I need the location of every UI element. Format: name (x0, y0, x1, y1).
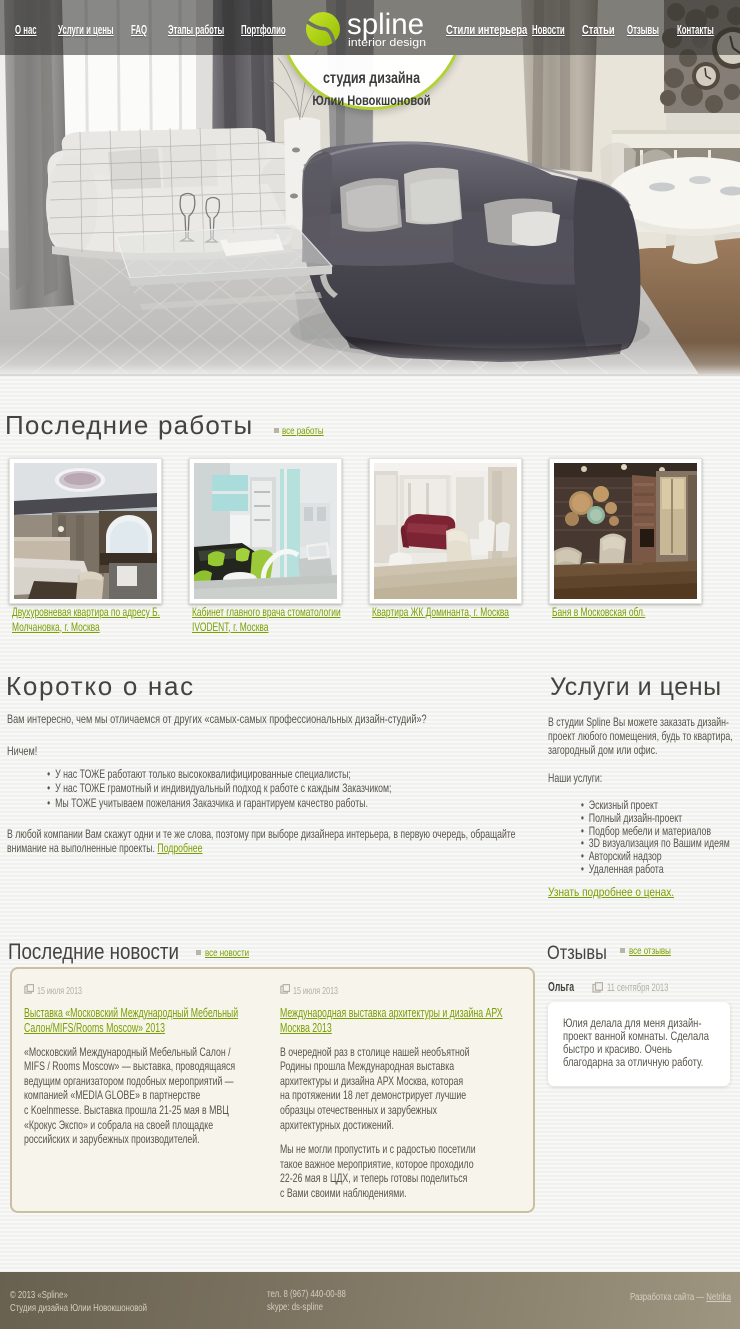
svg-text:interior design: interior design (348, 37, 426, 49)
